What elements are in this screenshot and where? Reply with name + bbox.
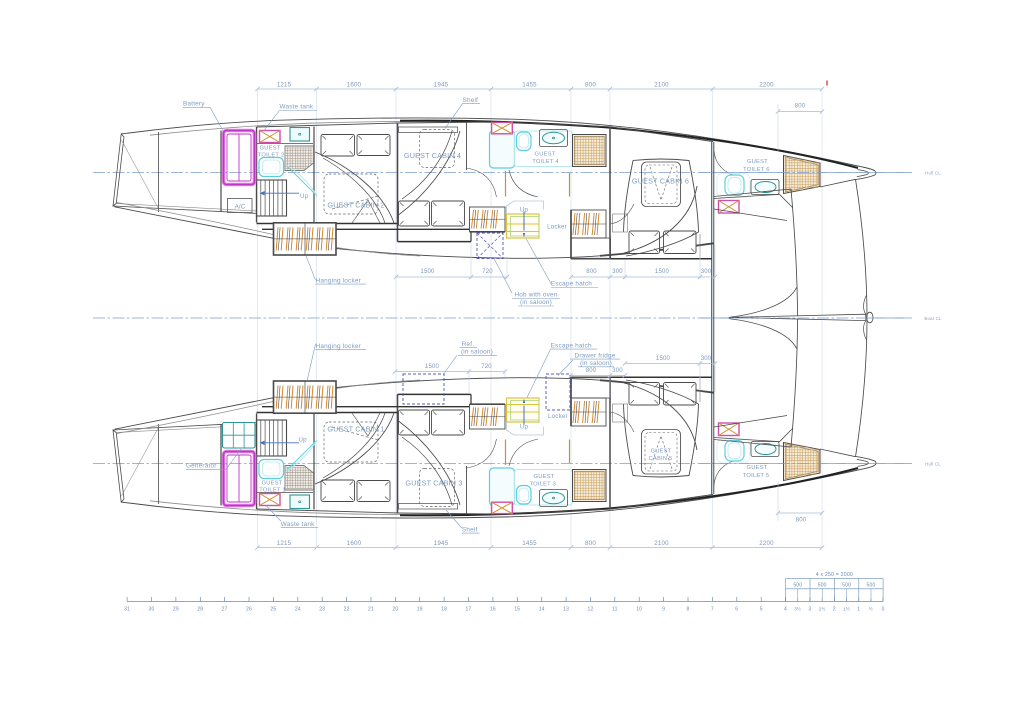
- svg-text:720: 720: [482, 269, 493, 275]
- svg-text:GUEST: GUEST: [262, 480, 283, 486]
- svg-text:Up: Up: [520, 206, 529, 213]
- svg-text:13: 13: [563, 607, 569, 613]
- svg-text:Locker: Locker: [548, 413, 568, 420]
- svg-text:(in saloon): (in saloon): [461, 349, 493, 356]
- svg-text:Up: Up: [300, 193, 309, 200]
- svg-text:1215: 1215: [277, 82, 292, 89]
- svg-text:16: 16: [490, 607, 496, 613]
- svg-text:Waste tank: Waste tank: [280, 104, 314, 111]
- svg-text:Hull CL: Hull CL: [925, 462, 941, 467]
- svg-text:9: 9: [662, 607, 665, 613]
- svg-text:GUEST: GUEST: [747, 159, 768, 165]
- svg-text:800: 800: [586, 368, 597, 374]
- svg-text:21: 21: [368, 607, 374, 613]
- svg-text:2½: 2½: [819, 606, 826, 612]
- svg-text:TOILET 4: TOILET 4: [532, 159, 559, 165]
- svg-text:800: 800: [585, 540, 596, 547]
- svg-text:720: 720: [481, 364, 492, 370]
- svg-text:30: 30: [149, 607, 155, 613]
- svg-text:GUEST: GUEST: [260, 146, 281, 152]
- svg-text:Hanging locker: Hanging locker: [316, 277, 362, 284]
- svg-text:800: 800: [796, 518, 807, 524]
- svg-text:GUEST CABIN 4: GUEST CABIN 4: [404, 151, 461, 160]
- svg-text:1600: 1600: [347, 540, 362, 547]
- svg-text:1½: 1½: [843, 606, 850, 612]
- svg-text:TOILET 5: TOILET 5: [743, 473, 770, 479]
- svg-text:A/C: A/C: [235, 205, 246, 211]
- svg-text:Battery: Battery: [183, 101, 205, 108]
- svg-text:Hanging locker: Hanging locker: [316, 343, 362, 350]
- svg-text:2200: 2200: [759, 82, 774, 89]
- svg-text:(in saloon): (in saloon): [520, 299, 552, 306]
- svg-text:28: 28: [197, 607, 203, 613]
- svg-text:GUEST CABIN 1: GUEST CABIN 1: [327, 424, 384, 433]
- svg-text:GUEST: GUEST: [651, 448, 672, 454]
- svg-text:14: 14: [539, 607, 545, 613]
- svg-text:1500: 1500: [656, 356, 671, 362]
- svg-text:10: 10: [636, 607, 642, 613]
- svg-text:Drawer fridge: Drawer fridge: [575, 352, 616, 359]
- svg-text:TOILET 6: TOILET 6: [743, 167, 770, 173]
- svg-text:½: ½: [869, 606, 873, 612]
- svg-text:Generator: Generator: [186, 463, 217, 470]
- svg-text:Locker: Locker: [547, 224, 567, 231]
- svg-text:800: 800: [585, 82, 596, 89]
- svg-text:(in saloon): (in saloon): [580, 360, 612, 367]
- svg-text:24: 24: [295, 607, 301, 613]
- svg-text:5: 5: [760, 607, 763, 613]
- svg-text:18: 18: [441, 607, 447, 613]
- svg-text:GUEST CABIN 6: GUEST CABIN 6: [632, 177, 689, 186]
- svg-text:8: 8: [687, 607, 690, 613]
- svg-text:Hob with oven: Hob with oven: [514, 292, 557, 299]
- svg-text:TOILET 1: TOILET 1: [259, 487, 286, 493]
- svg-text:500: 500: [818, 583, 827, 589]
- svg-text:GUEST: GUEST: [534, 474, 555, 480]
- svg-text:19: 19: [417, 607, 423, 613]
- svg-text:Ref.: Ref.: [462, 341, 475, 348]
- svg-text:300: 300: [701, 269, 712, 275]
- svg-text:Waste tank: Waste tank: [281, 521, 315, 528]
- svg-text:11: 11: [612, 607, 618, 613]
- svg-text:CABIN 5: CABIN 5: [649, 456, 673, 462]
- svg-text:22: 22: [344, 607, 350, 613]
- svg-text:800: 800: [795, 104, 806, 110]
- svg-text:2100: 2100: [654, 540, 669, 547]
- svg-text:500: 500: [793, 583, 802, 589]
- svg-text:2: 2: [833, 607, 836, 613]
- svg-text:GUEST CABIN 3: GUEST CABIN 3: [405, 478, 462, 487]
- svg-text:GUEST CABIN 2: GUEST CABIN 2: [327, 201, 384, 210]
- svg-text:15: 15: [514, 607, 520, 613]
- svg-text:1945: 1945: [434, 540, 449, 547]
- svg-text:25: 25: [270, 607, 276, 613]
- svg-text:12: 12: [588, 607, 594, 613]
- svg-text:800: 800: [586, 269, 597, 275]
- svg-text:Shelf: Shelf: [463, 97, 479, 104]
- svg-text:1500: 1500: [420, 269, 435, 275]
- svg-text:TOILET 3: TOILET 3: [530, 481, 557, 487]
- svg-text:500: 500: [842, 583, 851, 589]
- svg-text:300: 300: [612, 269, 623, 275]
- svg-text:Escape hatch: Escape hatch: [551, 281, 592, 288]
- svg-text:3½: 3½: [794, 606, 801, 612]
- svg-text:Up: Up: [520, 423, 529, 430]
- svg-text:1215: 1215: [277, 540, 292, 547]
- svg-text:1455: 1455: [522, 540, 537, 547]
- svg-text:2100: 2100: [654, 82, 669, 89]
- svg-text:26: 26: [246, 607, 252, 613]
- svg-text:300: 300: [612, 368, 623, 374]
- svg-text:Escape hatch: Escape hatch: [551, 342, 592, 349]
- svg-text:1500: 1500: [425, 364, 440, 370]
- svg-text:Hull CL: Hull CL: [925, 171, 941, 176]
- svg-text:17: 17: [466, 607, 472, 613]
- svg-text:1945: 1945: [434, 82, 449, 89]
- svg-text:0: 0: [882, 607, 885, 613]
- svg-text:300: 300: [701, 356, 712, 362]
- svg-text:1600: 1600: [347, 82, 362, 89]
- svg-text:4 x 250 = 2000: 4 x 250 = 2000: [816, 572, 853, 578]
- svg-text:1: 1: [857, 607, 860, 613]
- svg-text:Shelf: Shelf: [462, 526, 478, 533]
- svg-text:23: 23: [319, 607, 325, 613]
- svg-text:3: 3: [808, 607, 811, 613]
- svg-text:29: 29: [173, 607, 179, 613]
- svg-text:7: 7: [711, 607, 714, 613]
- svg-text:4: 4: [784, 607, 787, 613]
- svg-text:GUEST: GUEST: [535, 151, 556, 157]
- svg-text:20: 20: [392, 607, 398, 613]
- svg-text:TOILET 2: TOILET 2: [258, 153, 285, 159]
- svg-text:2200: 2200: [759, 540, 774, 547]
- svg-text:1455: 1455: [522, 82, 537, 89]
- svg-text:GUEST: GUEST: [747, 465, 768, 471]
- svg-text:31: 31: [124, 607, 130, 613]
- svg-text:1500: 1500: [655, 269, 670, 275]
- svg-text:27: 27: [222, 607, 228, 613]
- svg-text:500: 500: [867, 583, 876, 589]
- svg-text:Boat CL: Boat CL: [924, 316, 942, 321]
- svg-text:6: 6: [735, 607, 738, 613]
- svg-text:Up: Up: [299, 436, 308, 443]
